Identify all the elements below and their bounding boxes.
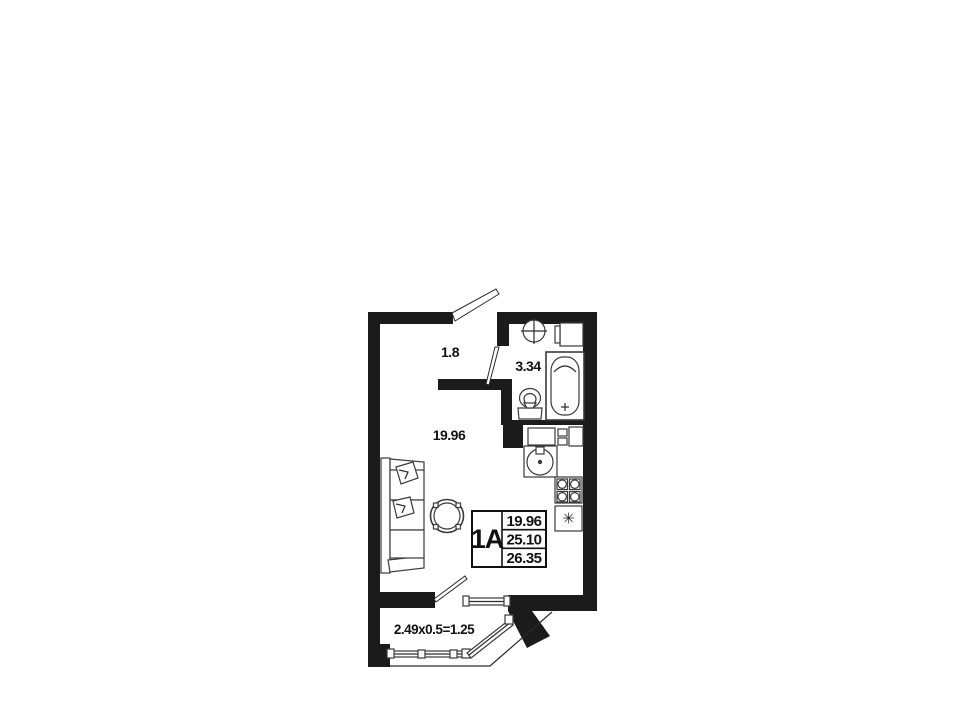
entrance-door [452,289,499,321]
floor-plan-page: ✳ [0,0,960,710]
wall-hall-partition [438,379,512,390]
bathroom-cabinet-icon [555,323,583,346]
wall-bottom-right [508,595,597,611]
hallway-area-label: 1.8 [441,344,460,360]
stamp-area-total-balcony: 26.35 [506,550,541,567]
balcony-dimension-label: 2.49x0.5=1.25 [394,622,475,637]
bathtub-icon [546,352,584,420]
wall-bathroom-stub-top [497,312,509,346]
stamp-area-total: 25.10 [506,532,541,549]
living-window [463,596,510,606]
wall-right [583,312,597,611]
wall-kitchen-stub [503,425,523,448]
balcony-window [387,649,470,658]
kitchen-counter [528,427,583,446]
toilet-icon [518,389,542,420]
refrigerator-icon: ✳ [555,506,582,531]
living-area-label: 19.96 [433,427,466,443]
wall-balcony-pier-diagonal [508,611,550,648]
floor-plan: ✳ [0,0,960,710]
stamp-table: 1A 19.96 25.10 26.35 [471,511,546,567]
refrigerator-symbol: ✳ [562,510,575,528]
wall-top-left [368,312,453,324]
sofa-icon [381,458,424,573]
dining-table-icon [431,500,464,533]
wall-left [368,312,380,667]
bathroom-area-label: 3.34 [515,358,541,374]
stove-icon [555,477,582,503]
wall-bottom-left [374,592,435,608]
stamp-area-living: 19.96 [506,513,541,530]
living-furniture [381,458,464,573]
unit-label: 1A [471,524,504,554]
wall-top-right [497,312,597,324]
balcony-door [434,576,467,602]
kitchen-sink-icon [524,446,557,477]
wall-bathroom-left [501,379,512,425]
